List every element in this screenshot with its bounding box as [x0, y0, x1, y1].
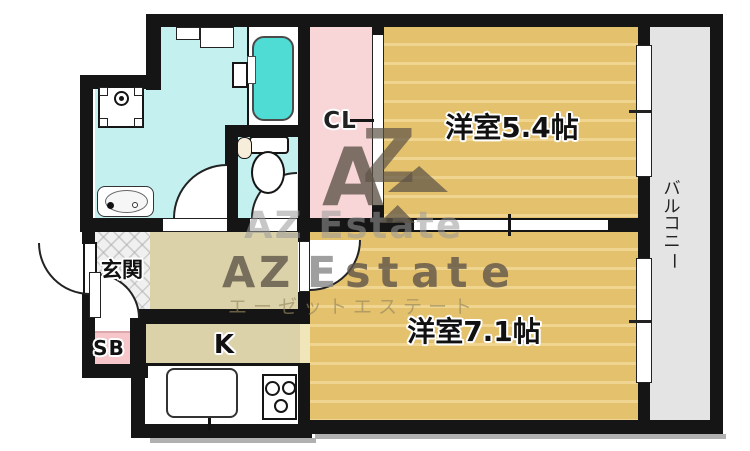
toilet-icon	[251, 151, 285, 194]
bedroom-door-leaf	[299, 241, 310, 292]
wall-partition-left	[310, 218, 414, 232]
wall-kitchen-top	[131, 309, 302, 324]
wall-shoebox-bottom	[82, 364, 148, 378]
stove-burner	[265, 381, 280, 396]
room-partition-sliding-door	[414, 218, 608, 232]
window-lower-mullion	[629, 320, 652, 323]
wall-kitchen-right	[298, 363, 310, 425]
bedroom-upper-label: 洋室5.4帖	[387, 106, 637, 146]
washstand-counter	[176, 27, 200, 40]
wall-bottom-kitchen	[131, 424, 312, 438]
wall-top	[148, 14, 723, 27]
pan-corner-tab	[99, 87, 108, 96]
wall-bedroom-left-upper	[298, 218, 310, 242]
kitchen-sink-icon	[166, 368, 238, 418]
wall-right	[710, 14, 723, 434]
bathroom-door	[232, 62, 248, 88]
pan-corner-tab	[134, 118, 143, 127]
faucet-icon	[107, 202, 114, 209]
bathtub-step	[247, 56, 256, 84]
balcony-label: バルコニー	[658, 181, 686, 269]
pan-corner-tab	[134, 87, 143, 96]
stove-burner	[282, 381, 296, 395]
washstand-counter	[200, 27, 234, 48]
entrance-label: 玄関	[92, 254, 152, 284]
faucet-handle	[132, 202, 138, 208]
partition-tick	[508, 214, 511, 236]
wall-laundry-left	[80, 75, 93, 232]
hallway-area	[150, 232, 298, 309]
front-door-swing-arc	[38, 243, 90, 295]
floor-plan: AZ Estate Z A A Z E s t a t e エーゼットエステート…	[0, 0, 750, 451]
shoe-box-label: SB	[88, 336, 130, 360]
bedroom-lower-label: 洋室7.1帖	[349, 310, 599, 350]
bathtub-icon	[252, 36, 294, 121]
wall-washroom-left	[146, 14, 161, 90]
kitchen-label: K	[200, 330, 248, 360]
toilet-paper-holder	[237, 137, 252, 159]
toilet-door-opening	[250, 218, 297, 232]
stove-burner	[274, 399, 288, 413]
wall-entrance-left-upper	[82, 218, 95, 244]
drain-dot	[119, 96, 124, 101]
kitchen-faucet	[208, 418, 211, 431]
pan-corner-tab	[99, 118, 108, 127]
washroom-door-opening	[163, 218, 227, 232]
wall-shadow	[150, 438, 316, 443]
wall-bottom	[308, 420, 723, 434]
wall-closet-left	[298, 14, 310, 232]
closet-label: CL	[312, 108, 368, 134]
wall-shadow	[315, 434, 726, 439]
kitchen-opening	[300, 324, 310, 363]
